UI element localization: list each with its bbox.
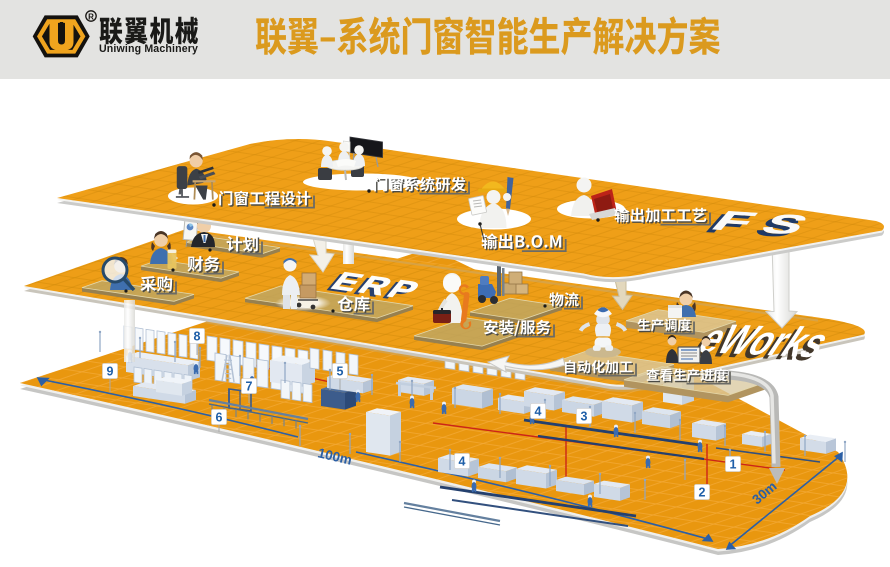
svg-text:3: 3 <box>581 409 588 423</box>
svg-text:2: 2 <box>699 485 706 499</box>
svg-text:Uniwing Machinery: Uniwing Machinery <box>99 43 198 55</box>
svg-text:R: R <box>88 13 94 22</box>
svg-text:8: 8 <box>194 329 201 343</box>
svg-text:4: 4 <box>459 454 466 468</box>
svg-text:7: 7 <box>246 379 253 393</box>
svg-text:1: 1 <box>730 457 737 471</box>
svg-text:9: 9 <box>107 364 114 378</box>
svg-text:4: 4 <box>535 404 542 418</box>
svg-text:5: 5 <box>337 364 344 378</box>
svg-text:6: 6 <box>216 410 223 424</box>
